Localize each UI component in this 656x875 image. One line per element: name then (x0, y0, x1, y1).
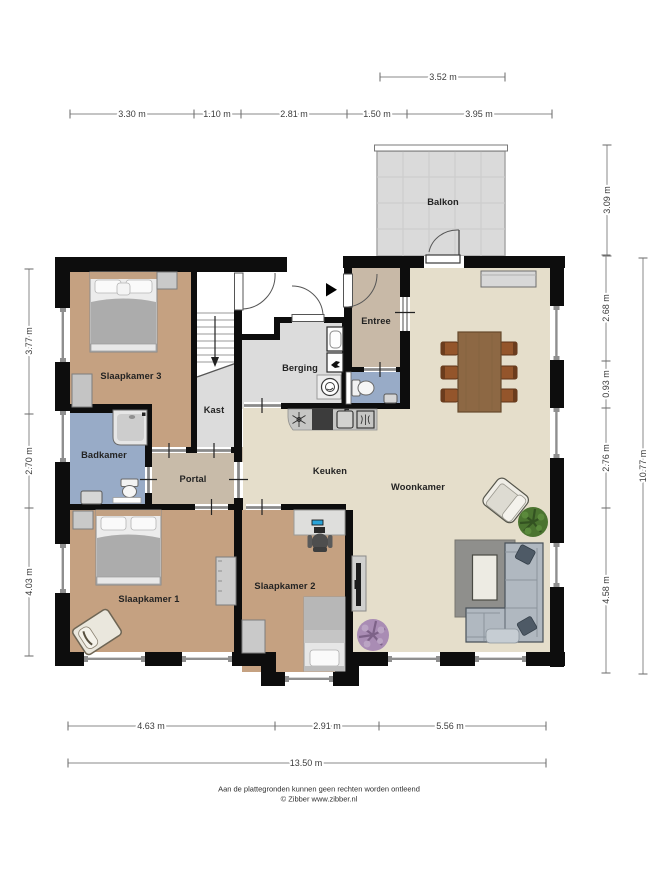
svg-text:5.56 m: 5.56 m (436, 721, 464, 731)
svg-text:2.70 m: 2.70 m (24, 447, 34, 475)
svg-text:3.77 m: 3.77 m (24, 327, 34, 355)
svg-text:3.52 m: 3.52 m (429, 72, 457, 82)
svg-text:Badkamer: Badkamer (81, 450, 127, 460)
svg-text:Balkon: Balkon (427, 197, 459, 207)
svg-text:Portal: Portal (180, 474, 207, 484)
svg-text:2.68 m: 2.68 m (601, 294, 611, 322)
svg-text:Slaapkamer 1: Slaapkamer 1 (118, 594, 179, 604)
svg-text:Entree: Entree (361, 316, 391, 326)
svg-text:1.50 m: 1.50 m (363, 109, 391, 119)
svg-text:13.50 m: 13.50 m (290, 758, 323, 768)
svg-text:4.58 m: 4.58 m (601, 576, 611, 604)
svg-text:10.77 m: 10.77 m (638, 450, 648, 483)
svg-text:2.81 m: 2.81 m (280, 109, 308, 119)
svg-text:© Zibber www.zibber.nl: © Zibber www.zibber.nl (281, 795, 358, 804)
svg-text:Woonkamer: Woonkamer (391, 482, 445, 492)
svg-text:2.76 m: 2.76 m (601, 444, 611, 472)
svg-text:3.30 m: 3.30 m (118, 109, 146, 119)
svg-text:4.63 m: 4.63 m (137, 721, 165, 731)
svg-text:3.09 m: 3.09 m (602, 186, 612, 214)
svg-text:Slaapkamer 3: Slaapkamer 3 (100, 371, 161, 381)
svg-text:Berging: Berging (282, 363, 318, 373)
svg-text:Keuken: Keuken (313, 466, 347, 476)
svg-text:4.03 m: 4.03 m (24, 568, 34, 596)
svg-text:Aan de plattegronden kunnen ge: Aan de plattegronden kunnen geen rechten… (218, 785, 420, 794)
svg-text:Kast: Kast (204, 405, 225, 415)
svg-text:Slaapkamer 2: Slaapkamer 2 (254, 581, 315, 591)
svg-text:1.10 m: 1.10 m (203, 109, 231, 119)
svg-text:3.95 m: 3.95 m (465, 109, 493, 119)
svg-text:2.91 m: 2.91 m (313, 721, 341, 731)
svg-text:0.93 m: 0.93 m (601, 370, 611, 398)
